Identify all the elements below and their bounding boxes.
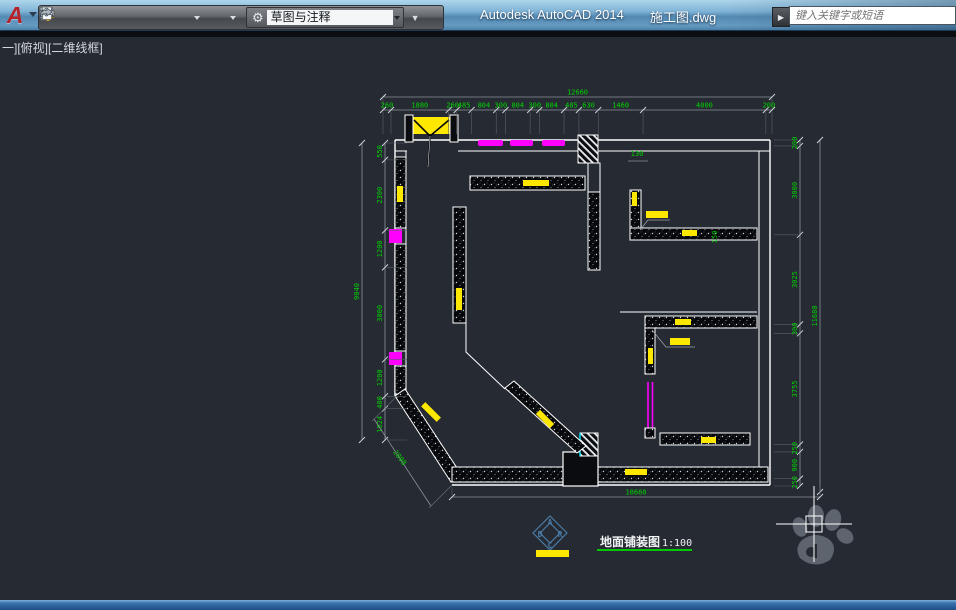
document-title: 施工图.dwg — [650, 7, 716, 26]
search-go-button[interactable]: ▶ — [772, 7, 790, 27]
logo-letter: C — [548, 541, 553, 550]
dim-label: 3025 — [791, 271, 799, 288]
infocenter-search-input[interactable] — [789, 6, 956, 25]
dim-chain-left-overall: 9040 — [353, 140, 365, 443]
window-title: Autodesk AutoCAD 2014 施工图.dwg — [480, 7, 716, 26]
app-title: Autodesk AutoCAD 2014 — [480, 7, 624, 26]
interior-walls — [453, 163, 757, 453]
dim-label: 150 — [711, 231, 719, 244]
dim-label: 300 — [791, 323, 799, 336]
app-menu-caret-icon[interactable] — [29, 12, 37, 17]
dim-label: 200 — [791, 137, 799, 150]
dim-label: 9040 — [353, 283, 361, 300]
entry-door — [405, 115, 458, 167]
dim-label: 1200 — [376, 240, 384, 257]
dim-label: 10660 — [625, 489, 646, 497]
autocad-app-icon[interactable]: A — [2, 2, 28, 28]
column-bottom — [563, 452, 598, 486]
room2-top-wall — [645, 316, 757, 328]
plan-scale: 1:100 — [662, 538, 692, 549]
dim-label: 300 — [495, 102, 508, 110]
entry-post-left — [405, 115, 413, 142]
dim-label: 4000 — [696, 102, 713, 110]
plan-title: 地面铺装图 — [600, 534, 660, 549]
toolbar-collapse-icon[interactable]: ▼ — [411, 13, 420, 23]
dim-label: 1880 — [411, 102, 428, 110]
dim-chain-right-overall: 11680 — [811, 137, 823, 495]
room2-left-wall2 — [645, 428, 655, 438]
workspace-switcher[interactable]: ⚙ 草图与注释 — [246, 7, 404, 28]
workspace-caret-icon — [394, 16, 400, 20]
open-folder-icon[interactable] — [68, 8, 90, 27]
gear-icon: ⚙ — [252, 10, 264, 26]
dim-label: 1200 — [376, 369, 384, 386]
dim-label: 260 — [381, 102, 394, 110]
dim-label: 12660 — [567, 89, 588, 97]
wall-left-mid — [395, 244, 406, 351]
redo-history-caret-icon[interactable] — [230, 16, 236, 20]
dim-label: 2898 — [391, 449, 408, 467]
logo-letter: D — [538, 530, 543, 539]
dim-label: 900 — [791, 459, 799, 472]
wall-c-jamb — [588, 163, 600, 192]
title-underline — [597, 549, 692, 551]
dim-label: 1460 — [612, 102, 629, 110]
logo-letter: A — [548, 518, 553, 527]
save-as-icon[interactable] — [118, 8, 140, 27]
floor-plan: 130 150 12660 26018802604858043008043008… — [353, 89, 823, 558]
dim-label: 550 — [376, 145, 384, 158]
viewport-controls-label[interactable]: 一][俯视][二维线框] — [2, 39, 103, 56]
dim-label: 804 — [478, 102, 491, 110]
dim-label: 400 — [376, 396, 384, 409]
dim-label: 804 — [511, 102, 524, 110]
wall-bottom — [452, 467, 768, 482]
dim-label: 200 — [763, 102, 776, 110]
drawing-layer[interactable]: 130 150 12660 26018802604858043008043008… — [0, 0, 956, 610]
redo-icon[interactable] — [204, 8, 226, 27]
dim-label: 804 — [545, 102, 558, 110]
dim-label: 250 — [791, 442, 799, 455]
dim-label: 630 — [582, 102, 595, 110]
autocad-window: 130 150 12660 26018802604858043008043008… — [0, 0, 956, 610]
dim-label: 250 — [791, 476, 799, 489]
ribbon-collapsed-strip — [0, 31, 956, 37]
quick-access-toolbar: ⚙ 草图与注释 ▼ — [38, 5, 444, 30]
dim-chain-right: 200300030253003755250900250 — [774, 137, 803, 489]
dim-label: 3000 — [376, 305, 384, 322]
paw-watermark — [790, 505, 856, 565]
sheet-legend: A D R C 地面铺装图 1:100 — [533, 516, 692, 557]
taskbar-edge — [0, 600, 956, 610]
workspace-name: 草图与注释 — [267, 10, 393, 25]
wall-diagonal — [395, 389, 461, 482]
dim-label: 3755 — [791, 380, 799, 397]
dim-label: 130 — [631, 150, 644, 158]
dim-label: 300 — [528, 102, 541, 110]
undo-icon[interactable] — [168, 8, 190, 27]
column-top — [578, 135, 598, 163]
dim-label: 3000 — [791, 182, 799, 199]
print-icon[interactable] — [143, 8, 165, 27]
dim-label: 11680 — [811, 305, 819, 326]
save-icon[interactable] — [93, 8, 115, 27]
wall-c — [588, 192, 600, 270]
dim-label: 2300 — [376, 187, 384, 204]
logo-yellow-bar — [536, 550, 569, 557]
dim-label: 485 — [565, 102, 578, 110]
undo-history-caret-icon[interactable] — [194, 16, 200, 20]
logo-letter: R — [558, 530, 563, 539]
dim-chain-bottom-overall: 10660 — [449, 487, 823, 500]
dim-label: 485 — [458, 102, 471, 110]
